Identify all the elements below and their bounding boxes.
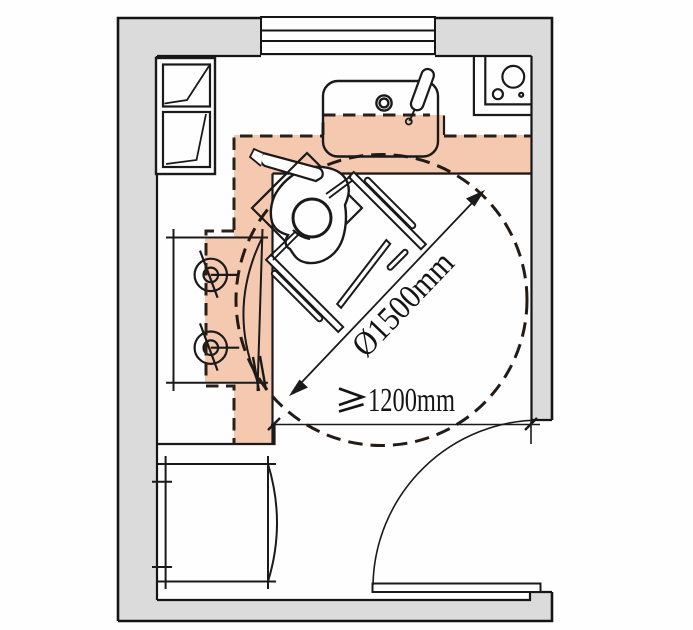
svg-text:1200mm: 1200mm	[368, 382, 455, 419]
